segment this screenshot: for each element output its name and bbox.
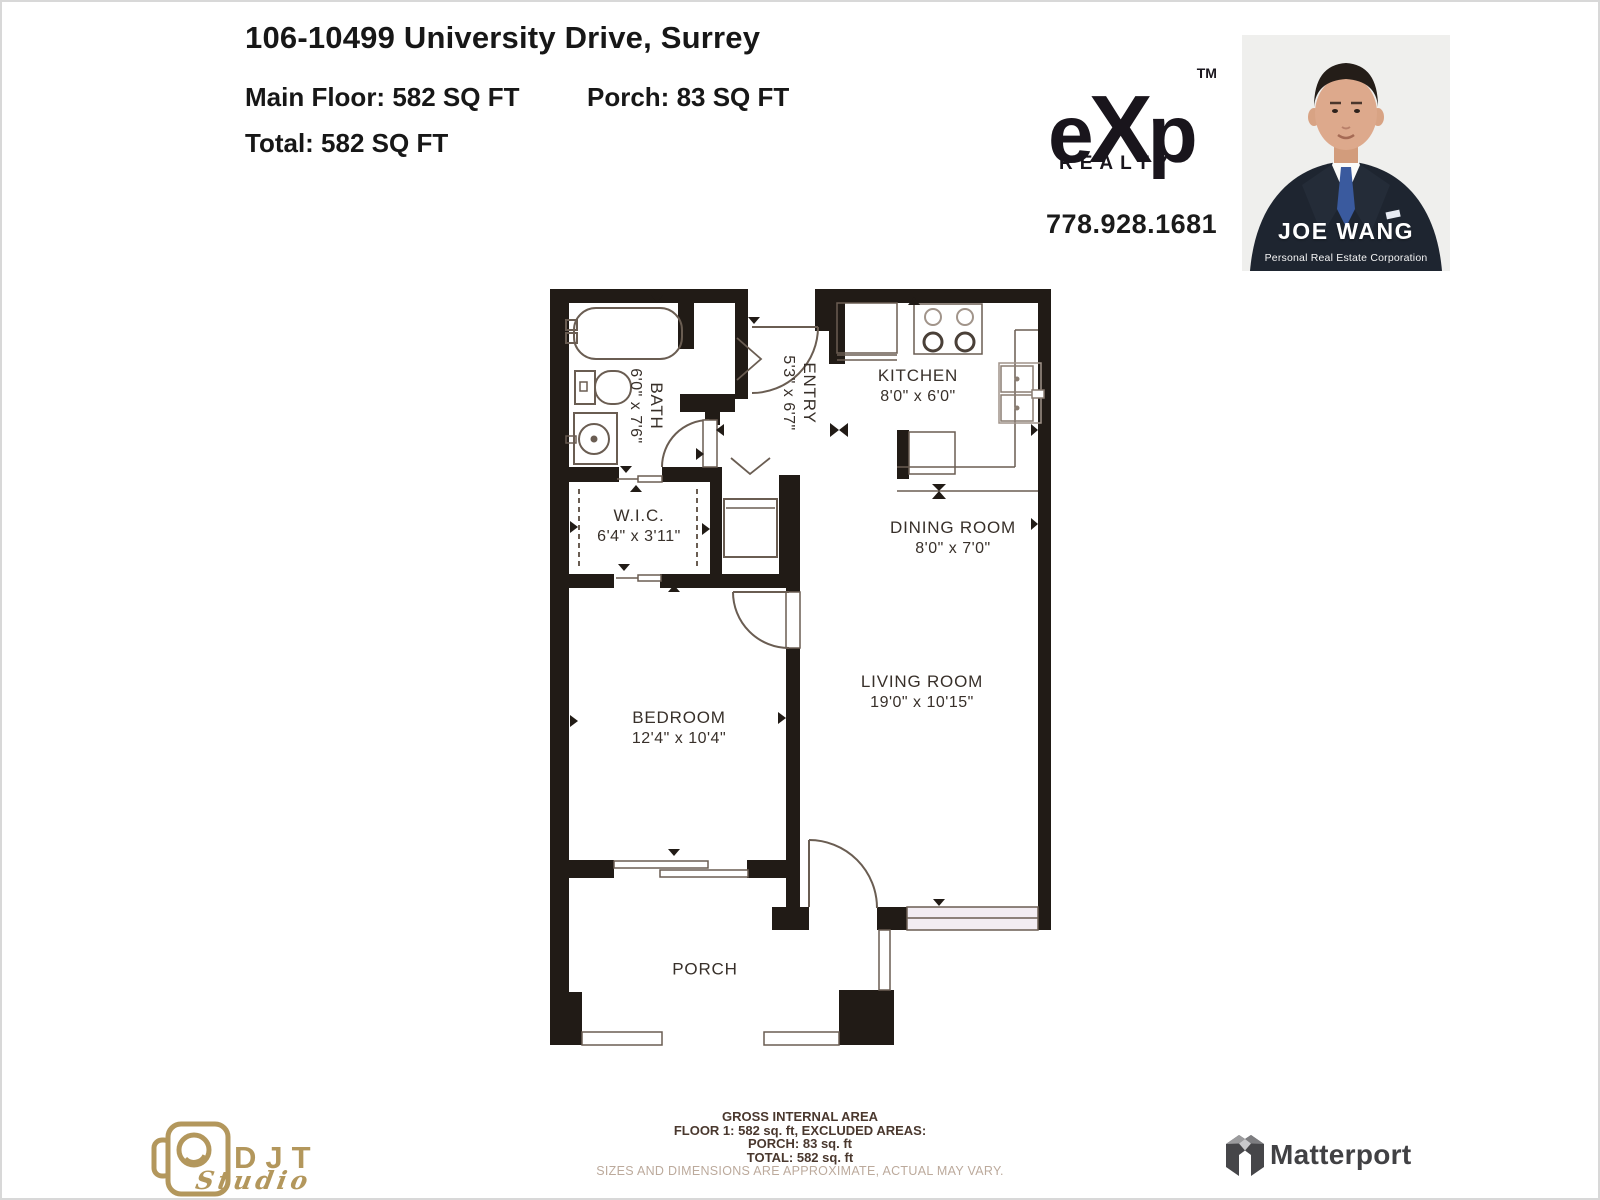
stove-burner — [924, 333, 942, 351]
stove-burner — [956, 333, 974, 351]
sliding-door-track — [638, 476, 662, 482]
wall-right — [1038, 289, 1051, 930]
room-label-dining: DINING ROOM 8'0" x 7'0" — [890, 517, 1016, 559]
room-label-kitchen: KITCHEN 8'0" x 6'0" — [878, 365, 958, 407]
porch-railing — [764, 1032, 839, 1045]
room-label-porch: PORCH — [672, 959, 737, 980]
bathtub — [574, 308, 682, 359]
sliding-door-track — [638, 575, 661, 581]
floorplan-drawing — [2, 2, 1600, 1200]
porch-pillar-left — [550, 992, 582, 1045]
djt-sub: Studio — [193, 1166, 314, 1195]
fridge — [837, 303, 897, 353]
djt-studio-logo: DJT Studio — [150, 1118, 350, 1200]
wall-top-right — [828, 289, 1051, 303]
bedroom-window — [614, 861, 708, 868]
room-label-entry: ENTRY 5'3" x 6'7" — [778, 355, 820, 430]
flyer-page: 106-10499 University Drive, Surrey Main … — [0, 0, 1600, 1200]
bedroom-door — [786, 592, 800, 648]
porch-side-wall — [879, 930, 890, 990]
matterport-icon — [1224, 1132, 1266, 1180]
room-label-bath: BATH 6'0" x 7'6" — [625, 368, 667, 443]
bath-door — [662, 420, 709, 467]
room-label-living: LIVING ROOM 19'0" x 10'15" — [861, 671, 983, 713]
room-label-bedroom: BEDROOM 12'4" x 10'4" — [632, 707, 726, 749]
toilet — [575, 371, 595, 404]
porch-railing — [582, 1032, 662, 1045]
closet-door-chevron — [731, 458, 770, 474]
porch-pillar-right — [839, 990, 894, 1045]
wall-bedroom-living — [786, 647, 800, 930]
wall-bedroom-top — [660, 574, 800, 588]
room-label-wic: W.I.C. 6'4" x 3'11" — [597, 505, 681, 547]
matterport-wordmark: Matterport — [1270, 1139, 1411, 1171]
wall-top-left — [550, 289, 748, 303]
wall-left — [550, 289, 569, 994]
